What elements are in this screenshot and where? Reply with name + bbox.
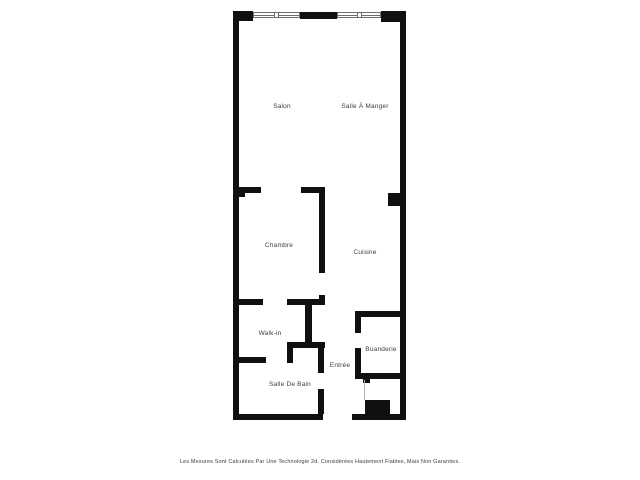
wall-segment <box>352 414 406 420</box>
disclaimer-text: Les Mesures Sont Calculées Par Une Techn… <box>0 460 640 466</box>
wall-segment <box>239 193 245 197</box>
wall-segment <box>319 193 325 273</box>
room-label-walk-in: Walk-in <box>259 331 282 338</box>
wall-segment <box>400 11 406 420</box>
floor-plan-page: SalonSalle À MangerChambreCuisineWalk-in… <box>0 0 640 480</box>
wall-segment <box>318 389 324 414</box>
wall-segment <box>233 11 253 21</box>
wall-segment <box>233 414 323 420</box>
window <box>253 12 300 18</box>
wall-segment <box>233 357 266 363</box>
wall-segment <box>318 348 324 373</box>
room-label-chambre: Chambre <box>265 243 293 250</box>
window <box>337 12 381 18</box>
wall-segment <box>287 348 293 363</box>
floor-plan: SalonSalle À MangerChambreCuisineWalk-in… <box>0 0 640 480</box>
wall-segment <box>355 311 406 317</box>
window-mullion <box>357 12 362 18</box>
wall-segment <box>233 299 263 305</box>
room-label-entree: Entrée <box>330 363 350 370</box>
room-label-salle-de-bain: Salle De Bain <box>269 382 311 389</box>
room-label-cuisine: Cuisine <box>353 250 376 257</box>
wall-segment <box>355 311 361 333</box>
wall-segment <box>365 400 390 414</box>
wall-segment <box>388 193 400 206</box>
room-label-salon: Salon <box>273 104 291 111</box>
window-mullion <box>274 12 279 18</box>
wall-segment <box>381 11 406 22</box>
wall-segment <box>300 12 337 19</box>
room-label-buanderie: Buanderie <box>365 347 396 354</box>
door-leaf-line <box>364 380 365 400</box>
wall-segment <box>233 187 261 193</box>
wall-segment <box>305 305 312 342</box>
room-label-salle-a-manger: Salle À Manger <box>341 104 388 111</box>
